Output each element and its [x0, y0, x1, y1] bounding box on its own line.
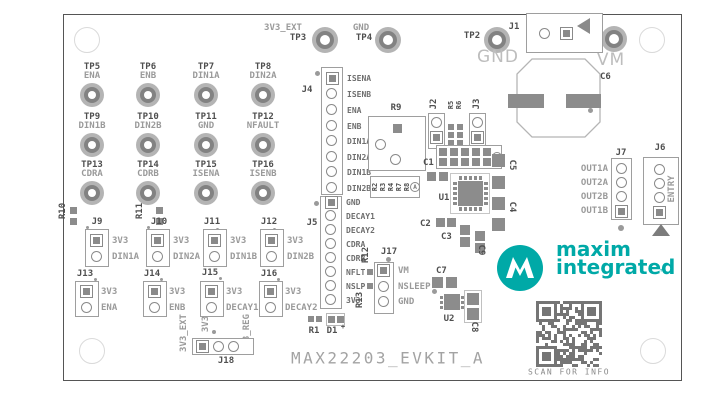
- j5-dot: [314, 201, 319, 206]
- j17-pin1-label: VM: [398, 266, 409, 276]
- c2-pad: [447, 218, 456, 227]
- j15-pin2-label: DECAY1: [226, 303, 259, 313]
- j5-label: J5: [307, 218, 318, 228]
- j4-pin: [326, 72, 339, 85]
- j5-pin: [325, 294, 336, 305]
- tp4-label: TP4: [356, 33, 372, 43]
- j4-pin-label: DIN2B: [347, 184, 371, 194]
- j5-pin-label: NFLT: [346, 268, 365, 278]
- j4-pin: [326, 182, 337, 193]
- tp3-signal-label: 3V3_EXT: [264, 23, 302, 33]
- r6-pad: [457, 124, 463, 130]
- c8-label: C8: [469, 322, 479, 333]
- j7-pin-label: OUT2A: [570, 178, 608, 188]
- c1-label: C1: [423, 158, 434, 168]
- c2-pad: [436, 218, 445, 227]
- u2-dot: [432, 289, 437, 294]
- j17-pin3: [378, 296, 389, 307]
- j7-pin: [616, 191, 627, 202]
- j15-pin1-label: 3V3: [226, 287, 242, 297]
- c6-dot: [588, 108, 593, 113]
- c3-label: C3: [441, 232, 452, 242]
- j7-pin-label: OUT2B: [570, 192, 608, 202]
- tp2-label: TP2: [464, 31, 480, 41]
- j5-pin: [325, 238, 336, 249]
- j5-pin-label: NSLP: [346, 282, 365, 292]
- j7-pin-label: OUT1B: [570, 206, 608, 216]
- j11-pin1: [208, 234, 221, 247]
- j16-pin2-label: DECAY2: [285, 303, 318, 313]
- j16-pin1-label: 3V3: [285, 287, 301, 297]
- tp10-signal: DIN2B: [134, 121, 161, 131]
- j10-pin1: [151, 234, 164, 247]
- array-pad: [472, 148, 480, 156]
- j17-pin2: [378, 281, 389, 292]
- qr-caption: SCAN FOR INFO: [528, 368, 610, 377]
- c5-pad: [492, 176, 505, 189]
- c3-pad: [460, 237, 470, 247]
- j11-pin1-label: 3V3: [230, 236, 246, 246]
- j4-dot: [315, 71, 320, 76]
- r9-pad: [393, 124, 402, 133]
- j6-entry-label: ENTRY: [667, 175, 677, 202]
- tp6-signal: ENB: [140, 71, 156, 81]
- c6-pad: [566, 94, 601, 108]
- j4-pin: [326, 104, 337, 115]
- pcb-evkit-diagram: 3V3_EXT TP3 GND TP4 TP2 GND TP1 VM J1 C6…: [0, 0, 719, 405]
- j4-pin: [326, 166, 337, 177]
- j10-pin2: [152, 251, 163, 262]
- r5-pad: [448, 132, 454, 138]
- j3-pin1: [471, 131, 484, 144]
- j14-pin2: [149, 302, 160, 313]
- j1-label: J1: [509, 22, 520, 32]
- d1-pad: [337, 316, 344, 323]
- j6-pin: [654, 192, 665, 203]
- c1-pad: [427, 172, 436, 181]
- j18-pin2: [213, 341, 224, 352]
- j4-pin: [326, 135, 337, 146]
- tp5-testpoint: [80, 83, 104, 107]
- r10-pad: [70, 207, 77, 214]
- tp15-signal: ISENA: [192, 169, 219, 179]
- tp14-signal: CDRB: [137, 169, 159, 179]
- j11-pin2: [209, 251, 220, 262]
- j6-polarity-arrow-icon: [652, 224, 670, 236]
- logo-tm: ™: [659, 268, 667, 277]
- tp16-testpoint: [251, 181, 275, 205]
- j11-label: J11: [204, 217, 220, 227]
- j1-pin: [539, 28, 550, 39]
- r13-label: R13: [355, 292, 365, 308]
- c7-pad: [432, 277, 443, 288]
- r6-label: R6: [455, 101, 463, 109]
- tp14-testpoint: [136, 181, 160, 205]
- j5-pin: [325, 210, 336, 221]
- j5-pin: [325, 266, 336, 277]
- j3-pin: [472, 117, 483, 128]
- array-pad: [483, 158, 491, 166]
- j5-pin-label: DECAY1: [346, 212, 375, 222]
- tp4-signal-label: GND: [353, 23, 369, 33]
- j7-label: J7: [616, 148, 627, 158]
- j18-dot: [212, 330, 216, 334]
- r2-label: R2: [371, 183, 379, 191]
- j7-pin-label: OUT1A: [570, 164, 608, 174]
- j18-pin1: [196, 340, 209, 353]
- array-pad: [450, 158, 458, 166]
- c1-pad: [439, 172, 448, 181]
- c8-pad: [467, 308, 479, 320]
- r11-pad: [156, 207, 163, 214]
- j6-label: J6: [655, 143, 666, 153]
- r6-pad: [457, 132, 463, 138]
- j18-mid-label: 3V3: [201, 316, 211, 332]
- tp13-testpoint: [80, 181, 104, 205]
- j18-label: J18: [218, 356, 234, 366]
- tp16-signal: ISENB: [249, 169, 276, 179]
- j1-pin1: [560, 27, 573, 40]
- j11-pin2-label: DIN1B: [230, 252, 257, 262]
- r4-label: R4: [387, 183, 395, 191]
- j5-pin-label: DECAY2: [346, 226, 375, 236]
- j7-pin: [616, 177, 627, 188]
- j18-left-label: 3V3_EXT: [179, 314, 189, 352]
- j17-label: J17: [381, 247, 397, 257]
- j4-pin-label: ISENB: [347, 90, 371, 100]
- tp6-testpoint: [136, 83, 160, 107]
- tp12-testpoint: [251, 133, 275, 157]
- qr-code: [536, 301, 602, 367]
- r10-pad: [70, 218, 77, 225]
- c8-pad: [467, 293, 479, 305]
- r7-label: R7: [395, 183, 403, 191]
- d1-pad: [328, 316, 335, 323]
- j2-pin: [431, 117, 442, 128]
- u1-pins: [459, 207, 482, 211]
- mounting-hole: [79, 338, 105, 364]
- j17-pin1: [377, 264, 390, 277]
- array-pad: [461, 158, 469, 166]
- r1-label: R1: [309, 326, 320, 336]
- r11-label: R11: [135, 203, 145, 219]
- r12-label: R12: [361, 247, 371, 263]
- j14-pin1-label: 3V3: [169, 287, 185, 297]
- tp15-testpoint: [194, 181, 218, 205]
- j4-pin: [326, 151, 337, 162]
- u1-pins: [453, 182, 457, 205]
- c5-pad: [492, 154, 505, 167]
- tp1-testpoint: [601, 26, 627, 52]
- j5-pin: [325, 280, 336, 291]
- c6-label: C6: [600, 72, 611, 82]
- j13-pin1-label: 3V3: [101, 287, 117, 297]
- u1-pins: [459, 176, 482, 180]
- r9-pin: [390, 154, 401, 165]
- tp5-signal: ENA: [84, 71, 100, 81]
- c2-label: C2: [420, 219, 431, 229]
- r5-pad: [448, 124, 454, 130]
- r13-pad: [367, 283, 373, 289]
- u1-pins: [484, 182, 488, 205]
- board-title: MAX22203_EVKIT_A: [291, 349, 485, 368]
- c3-pad: [460, 225, 470, 235]
- array-pad: [450, 148, 458, 156]
- tp8-signal: DIN2A: [249, 71, 276, 81]
- u2-label: U2: [444, 314, 455, 324]
- d1-label: D1: [327, 326, 338, 336]
- j4-pin-label: ISENA: [347, 74, 371, 84]
- tp7-signal: DIN1A: [192, 71, 219, 81]
- u1-body: [458, 181, 483, 206]
- j15-label: J15: [202, 268, 218, 278]
- j12-pin1-label: 3V3: [287, 236, 303, 246]
- j16-pin2: [265, 302, 276, 313]
- j9-label: J9: [92, 217, 103, 227]
- tp13-signal: CDRA: [81, 169, 103, 179]
- d1-polarity-mark: +: [341, 323, 345, 331]
- j9-pin2: [91, 251, 102, 262]
- j10-pin1-label: 3V3: [173, 236, 189, 246]
- r10-label: R10: [58, 203, 68, 219]
- c4-pad: [492, 197, 505, 210]
- j4-pin: [326, 120, 337, 131]
- j17-pin3-label: GND: [398, 297, 414, 307]
- j14-label: J14: [144, 269, 160, 279]
- j13-pin1: [80, 285, 93, 298]
- j10-pin2-label: DIN2A: [173, 252, 200, 262]
- u1-label: U1: [439, 193, 450, 203]
- j14-pin2-label: ENB: [169, 303, 185, 313]
- r12-pad: [367, 269, 373, 275]
- tp11-signal: GND: [198, 121, 214, 131]
- j14-pin1: [148, 285, 161, 298]
- array-pad: [461, 148, 469, 156]
- tp11-testpoint: [194, 133, 218, 157]
- tp3-testpoint: [312, 27, 338, 53]
- r9-pin: [375, 139, 386, 150]
- j5-pin: [325, 224, 336, 235]
- c6-pad: [508, 94, 544, 108]
- j10-label: J10: [151, 217, 167, 227]
- r3-label: R3: [379, 183, 387, 191]
- j7-pin: [616, 163, 627, 174]
- j5-pin: [325, 252, 336, 263]
- j6-pin: [654, 164, 665, 175]
- j16-pin1: [264, 285, 277, 298]
- r1-pad: [316, 316, 322, 322]
- j7-pin1: [615, 205, 628, 218]
- r5-label: R5: [447, 101, 455, 109]
- j12-label: J12: [261, 217, 277, 227]
- j6-pin1: [653, 206, 666, 219]
- maxim-logo-icon: [497, 245, 543, 291]
- array-pad: [439, 158, 447, 166]
- variant-marker-a: A: [410, 182, 420, 192]
- j17-pin2-label: NSLEEP: [398, 282, 431, 292]
- tp9-signal: DIN1B: [78, 121, 105, 131]
- c4-label: C4: [507, 202, 517, 213]
- j7-dot: [618, 225, 624, 231]
- j12-pin2: [266, 251, 277, 262]
- tp7-testpoint: [194, 83, 218, 107]
- u2-body: [444, 294, 460, 310]
- u2-pins: [440, 296, 443, 309]
- tp9-testpoint: [80, 133, 104, 157]
- array-pad: [472, 158, 480, 166]
- j9-pin2-label: DIN1A: [112, 252, 139, 262]
- j4-pin: [326, 88, 337, 99]
- j2-label: J2: [429, 99, 439, 110]
- tp8-testpoint: [251, 83, 275, 107]
- j6-pin: [654, 178, 665, 189]
- tp3-label: TP3: [290, 33, 306, 43]
- j15-pin1: [205, 285, 218, 298]
- tp4-testpoint: [375, 27, 401, 53]
- j5-pin-label: GND: [346, 198, 360, 208]
- j15-dot: [219, 277, 222, 280]
- j13-pin2-label: ENA: [101, 303, 117, 313]
- j13-pin2: [81, 302, 92, 313]
- j4-label: J4: [302, 85, 313, 95]
- j9-pin1: [90, 234, 103, 247]
- j9-pin1-label: 3V3: [112, 236, 128, 246]
- r1-pad: [308, 316, 314, 322]
- j2-pin1: [430, 131, 443, 144]
- c9-pad: [475, 231, 485, 241]
- c7-label: C7: [436, 266, 447, 276]
- j4-pin-label: ENB: [347, 122, 361, 132]
- mounting-hole: [74, 27, 100, 53]
- tp12-signal: NFAULT: [247, 121, 280, 131]
- j13-label: J13: [77, 269, 93, 279]
- r9-label: R9: [391, 103, 402, 113]
- j15-pin2: [206, 302, 217, 313]
- c9-label: C9: [476, 245, 486, 256]
- c7-pad: [446, 277, 457, 288]
- j12-pin1: [265, 234, 278, 247]
- mounting-hole: [640, 338, 666, 364]
- j5-pin: [325, 196, 338, 209]
- array-pad: [483, 148, 491, 156]
- j3-label: J3: [472, 99, 482, 110]
- c4-pad: [492, 218, 505, 231]
- array-pad: [439, 148, 447, 156]
- j12-pin2-label: DIN2B: [287, 252, 314, 262]
- j18-pin3: [228, 341, 239, 352]
- logo-word-2: integrated: [556, 258, 675, 276]
- tp10-testpoint: [136, 133, 160, 157]
- c5-label: C5: [507, 160, 517, 171]
- j4-pin-label: ENA: [347, 106, 361, 116]
- j1-polarity-arrow-icon: [577, 18, 590, 34]
- j16-label: J16: [261, 269, 277, 279]
